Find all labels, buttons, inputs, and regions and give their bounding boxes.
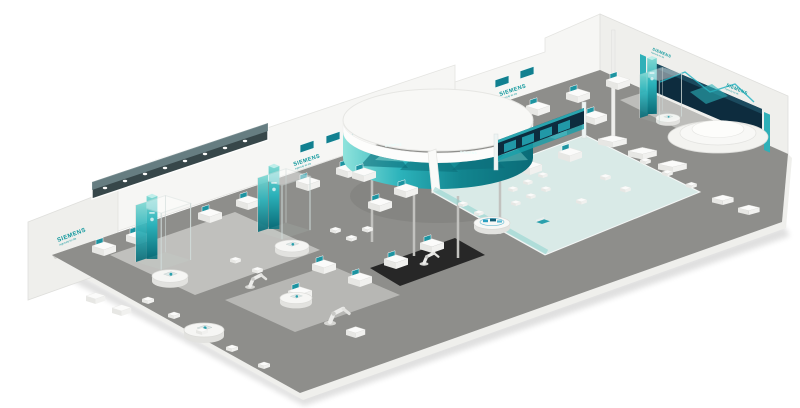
teal-totem xyxy=(647,56,657,114)
turntable-podium xyxy=(280,292,312,308)
exhibition-booth-render: SIEMENS Ingenuity for life SIEMENS Ingen… xyxy=(0,0,800,408)
cube-podium xyxy=(275,240,309,257)
cube-podium xyxy=(152,270,188,288)
model-table xyxy=(474,217,510,235)
booth-scene: SIEMENS Ingenuity for life SIEMENS Ingen… xyxy=(0,0,800,408)
amphitheater xyxy=(668,121,768,154)
